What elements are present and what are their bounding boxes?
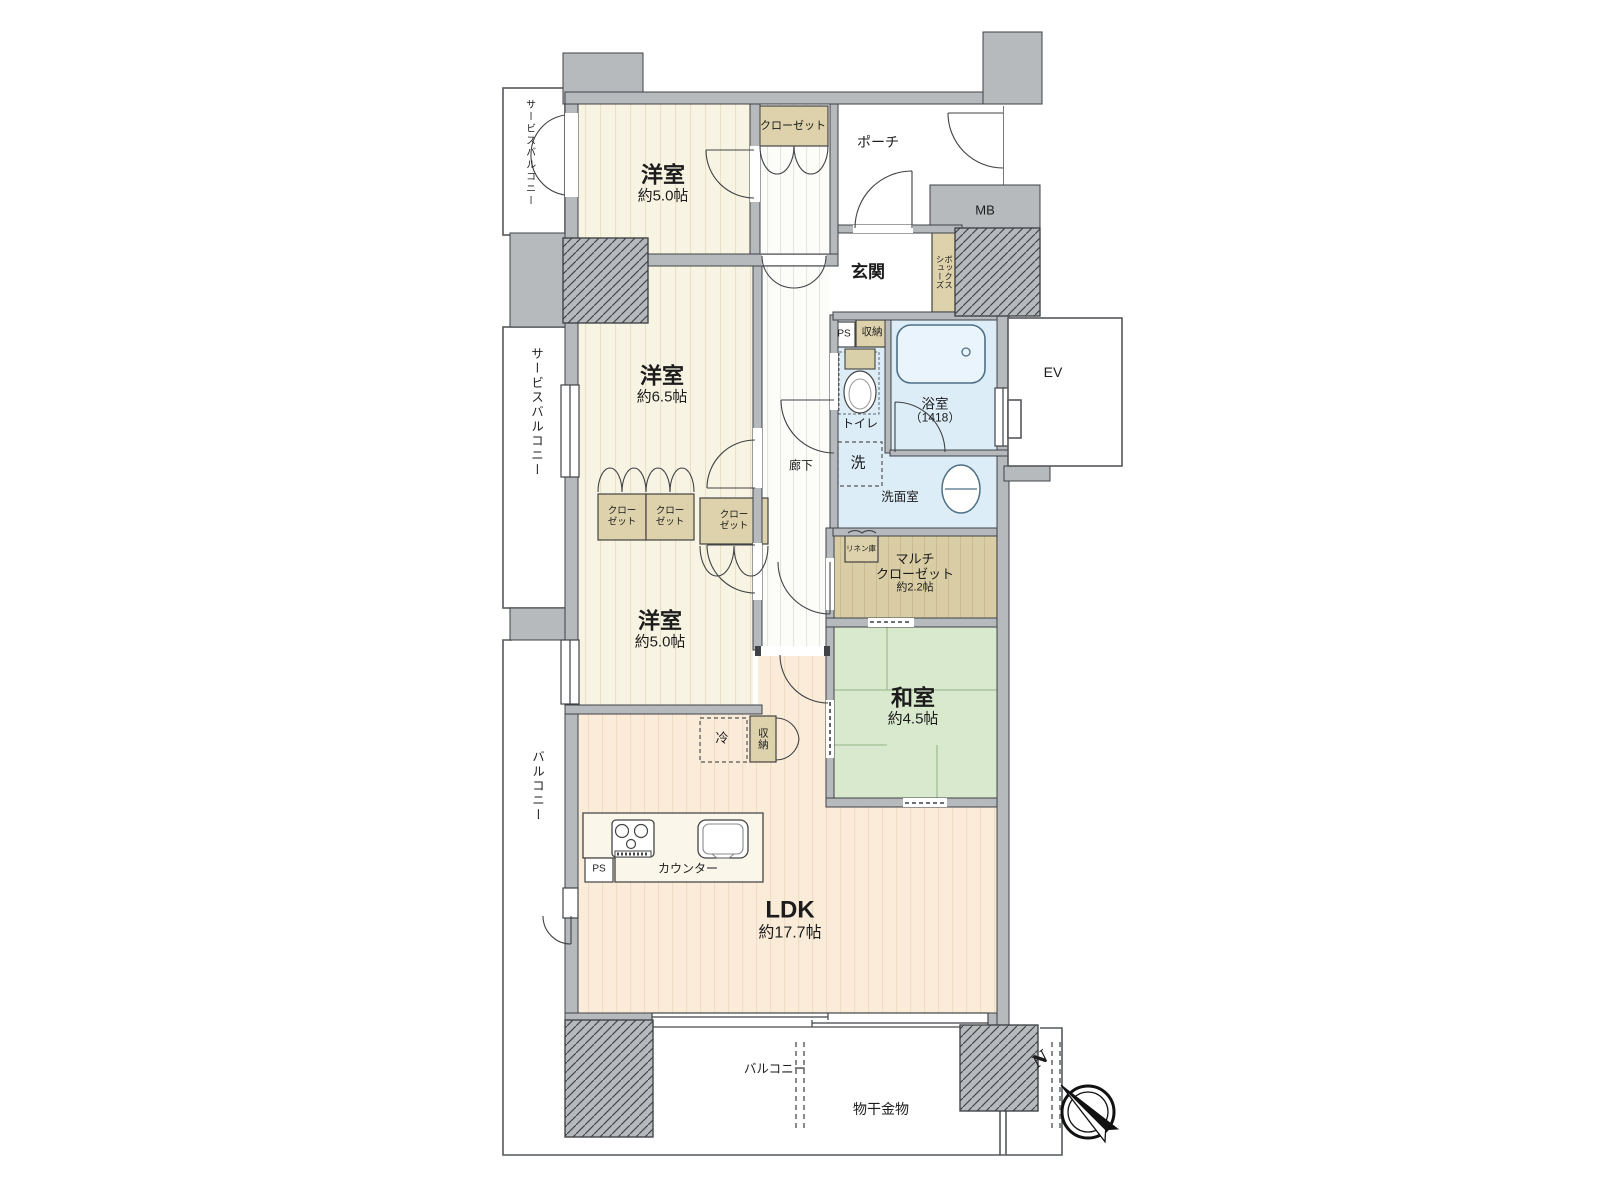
closet-top-label: クローゼット: [760, 120, 826, 132]
room-western-low-label: 洋室 約5.0帖: [635, 609, 686, 650]
service-balcony-2-label: サービスバルコニー: [529, 347, 543, 478]
service-balcony-doors: [531, 115, 565, 195]
corridor-floor: [758, 254, 830, 650]
room-western-top-label: 洋室 約5.0帖: [638, 163, 689, 204]
service-balcony-1-label: サービスバルコニー: [523, 99, 534, 207]
balcony-door-leaf: [563, 888, 578, 918]
washroom-label: 洗面室: [881, 490, 919, 504]
stove-icon: [612, 820, 654, 857]
toilet-label: トイレ: [842, 417, 878, 430]
mb-label: MB: [975, 204, 995, 219]
floorplan-drawing: [0, 0, 1600, 1200]
pillar-entrance: [955, 228, 1040, 316]
balcony-left-label: バルコニー: [530, 750, 544, 823]
storage-ldk-label: 収納: [756, 728, 768, 751]
laundry-hw-label: 物干金物: [853, 1102, 909, 1118]
closet-2-label: クロー ゼット: [656, 506, 685, 527]
corridor-label: 廊下: [789, 459, 813, 472]
ev-shaft: [1008, 318, 1122, 466]
ps-kitchen-label: PS: [592, 863, 605, 874]
multi-closet-label: マルチ クローゼット 約2.2帖: [876, 552, 954, 593]
japanese-room-label: 和室 約4.5帖: [888, 686, 939, 727]
bathtub-icon: [897, 325, 985, 383]
pillar-left-step: [563, 238, 648, 323]
ps-top-label: PS: [837, 328, 850, 339]
room-western-mid-label: 洋室 約6.5帖: [637, 364, 688, 405]
pillar-bottom-left: [565, 1020, 653, 1137]
ev-label: EV: [1044, 365, 1063, 381]
fridge-label: 冷: [715, 732, 728, 747]
balcony-bottom-label: バルコニー: [744, 1062, 806, 1076]
washer-label: 洗: [850, 456, 865, 473]
storage-top-label: 収納: [862, 327, 883, 339]
pillar-bottom-right: [960, 1025, 1038, 1111]
ldk-label: LDK 約17.7帖: [758, 898, 821, 943]
porch-label: ポーチ: [857, 135, 899, 151]
floorplan-canvas: サービスバルコニー サービスバルコニー バルコニー 洋室 約5.0帖 クローゼッ…: [0, 0, 1600, 1200]
compass-icon: [1043, 1067, 1130, 1154]
bath-label: 浴室 （1418）: [910, 397, 961, 426]
balcony-divider: [1000, 1111, 1006, 1155]
closet-3-label: クロー ゼット: [720, 510, 749, 531]
closet-1-label: クロー ゼット: [608, 506, 637, 527]
linen-label: リネン庫: [846, 545, 876, 553]
vanity-sink-icon: [942, 465, 980, 513]
kitchen-sink-icon: [698, 820, 748, 858]
entrance-label: 玄関: [851, 262, 885, 281]
counter-label: カウンター: [658, 862, 718, 875]
shoes-box-label: シューズ ボックス: [936, 255, 953, 289]
